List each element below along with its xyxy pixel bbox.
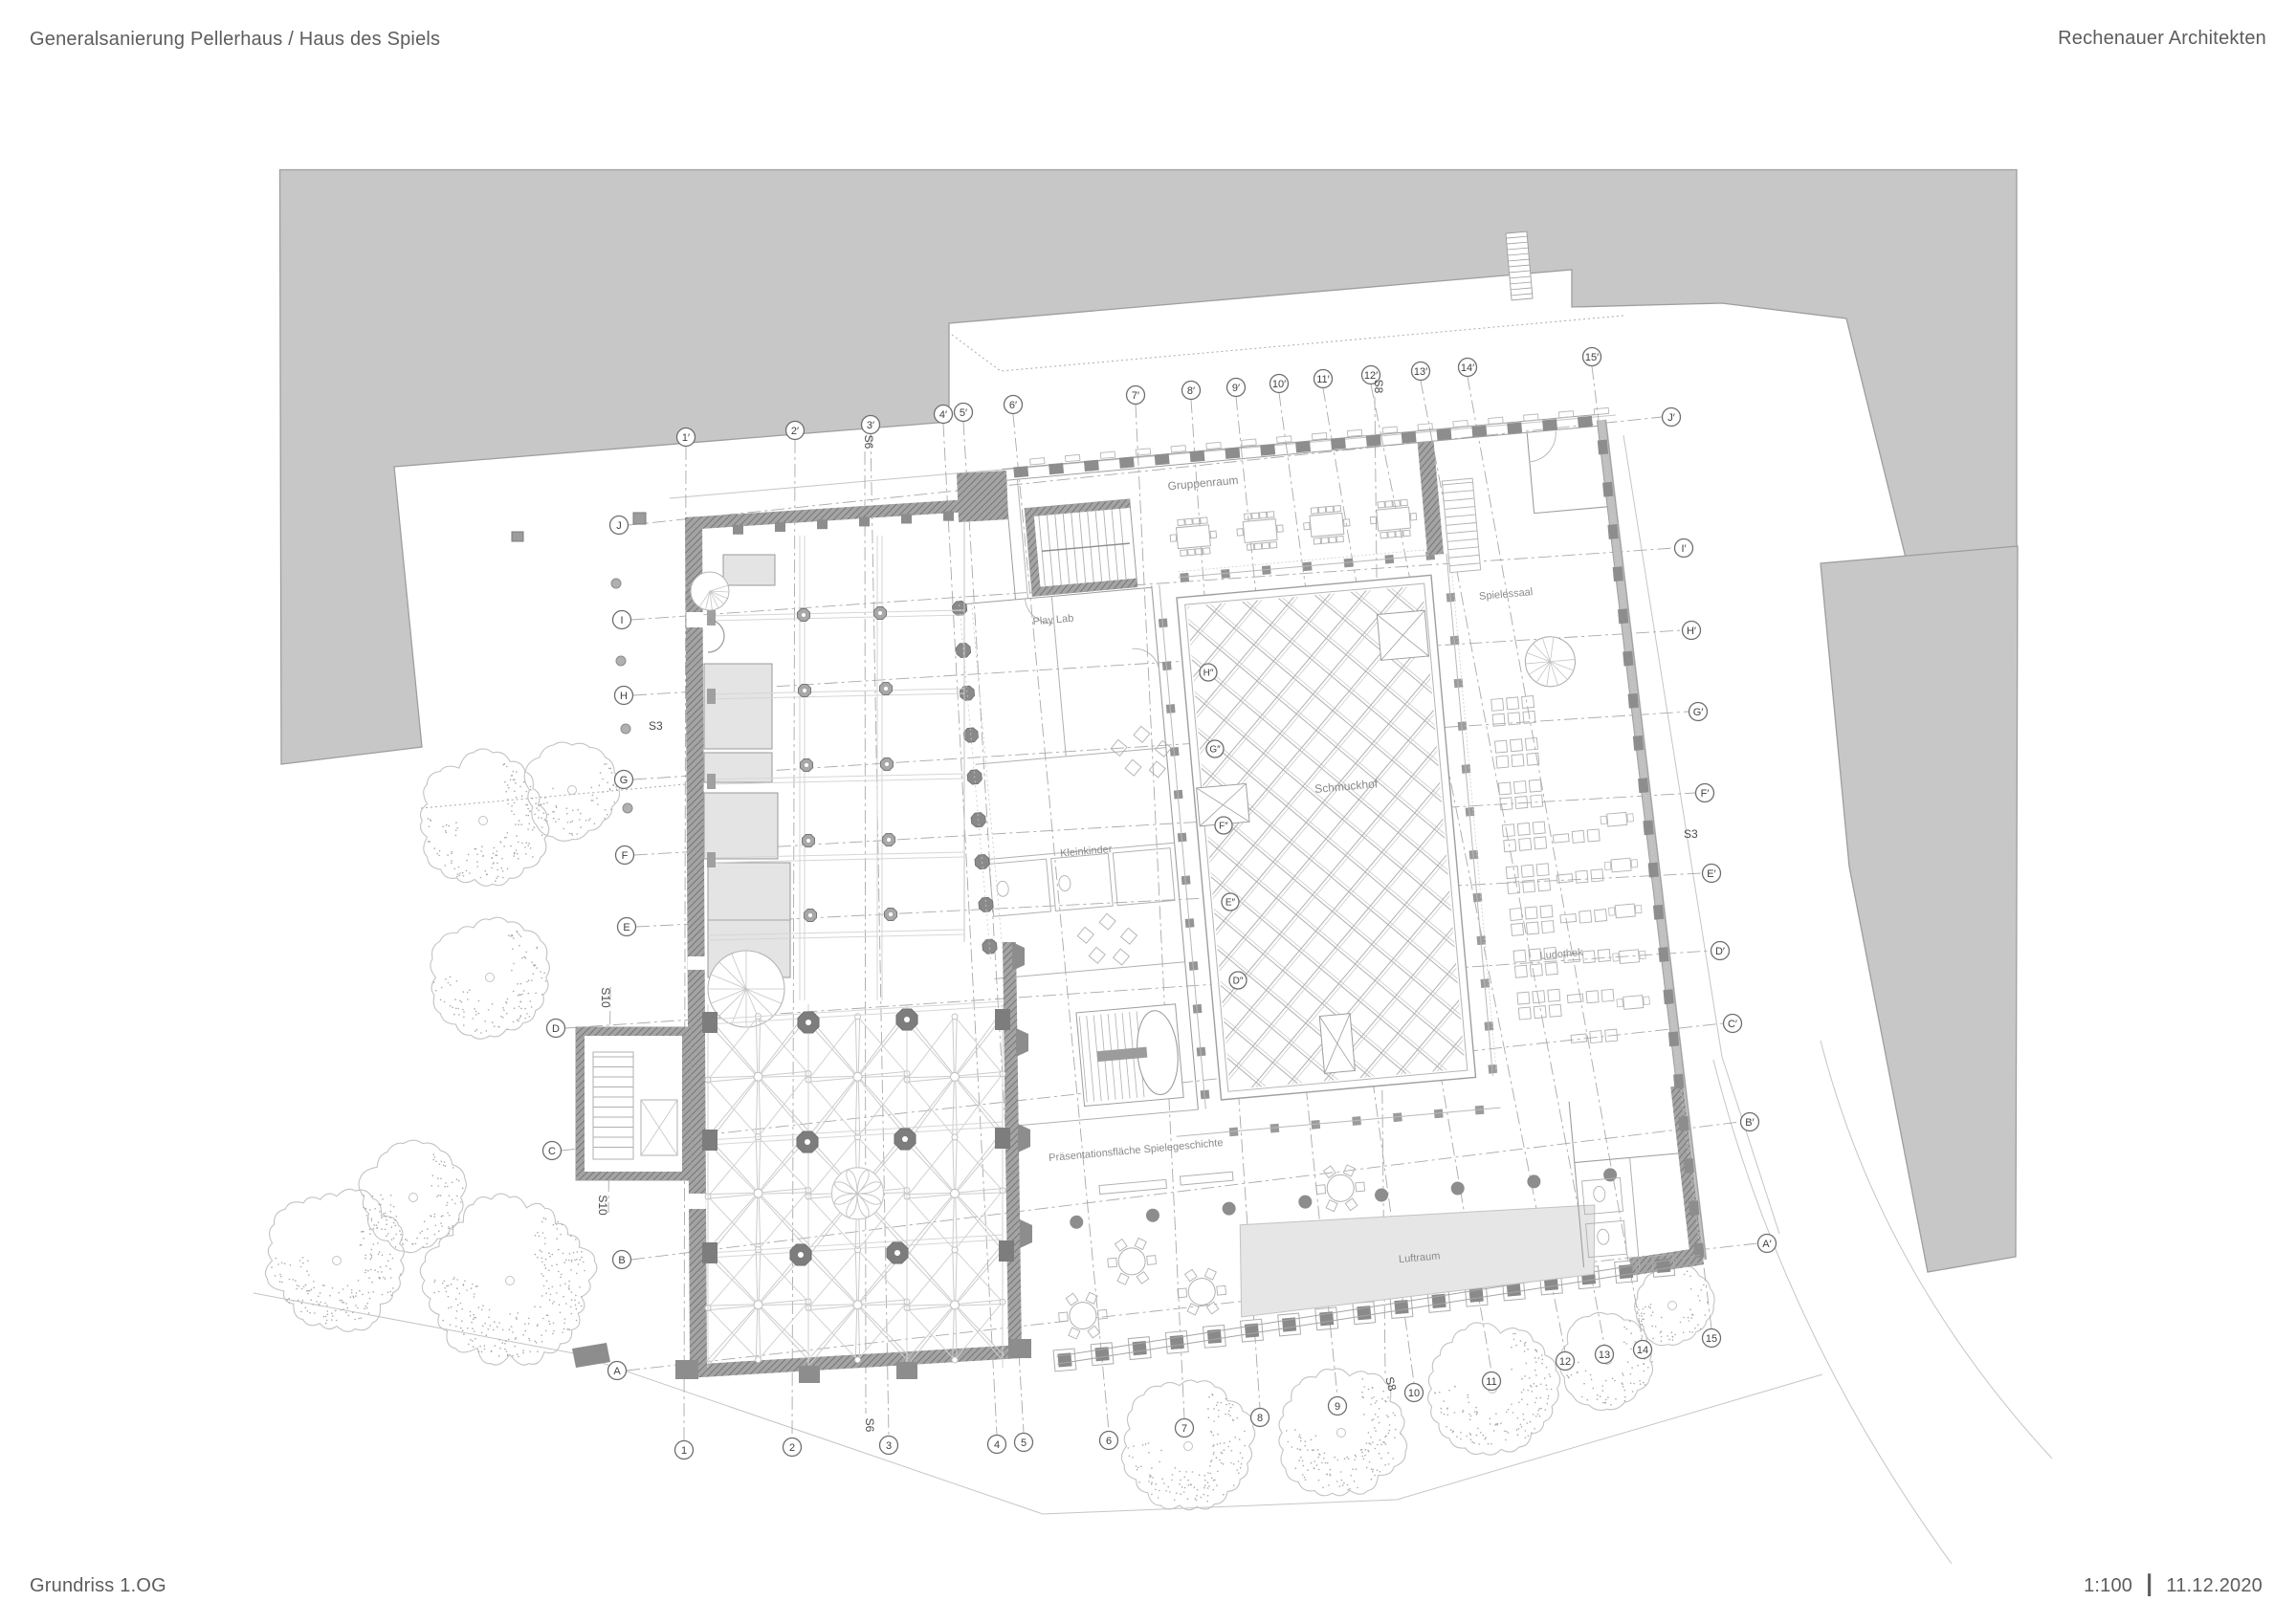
svg-text:Grundriss 1.OG: Grundriss 1.OG	[30, 1575, 166, 1596]
svg-text:S10: S10	[599, 987, 612, 1008]
svg-text:C: C	[548, 1146, 556, 1157]
svg-text:2′: 2′	[791, 426, 799, 437]
svg-text:S6: S6	[862, 435, 875, 450]
svg-text:J: J	[616, 520, 622, 532]
svg-text:9′: 9′	[1232, 383, 1240, 394]
svg-text:F: F	[622, 850, 629, 862]
svg-text:6′: 6′	[1009, 400, 1017, 411]
svg-text:E′: E′	[1707, 868, 1715, 880]
svg-text:I: I	[620, 615, 623, 626]
svg-text:13: 13	[1599, 1350, 1610, 1361]
svg-text:1: 1	[681, 1445, 687, 1457]
svg-text:A: A	[613, 1366, 621, 1377]
svg-text:2: 2	[789, 1442, 795, 1454]
svg-text:S6: S6	[863, 1418, 876, 1433]
svg-text:D′: D′	[1715, 946, 1725, 957]
svg-text:I′: I′	[1681, 543, 1686, 555]
svg-text:S8: S8	[1372, 380, 1385, 394]
svg-text:3′: 3′	[867, 420, 874, 431]
svg-text:G: G	[620, 775, 629, 786]
svg-text:9: 9	[1335, 1401, 1340, 1413]
svg-text:5: 5	[1021, 1437, 1027, 1449]
svg-text:D: D	[552, 1023, 560, 1035]
svg-text:S10: S10	[596, 1195, 609, 1216]
svg-text:A′: A′	[1762, 1239, 1771, 1250]
svg-text:15′: 15′	[1585, 352, 1599, 363]
svg-text:E″: E″	[1225, 898, 1236, 909]
svg-text:G″: G″	[1209, 745, 1221, 756]
svg-text:15: 15	[1706, 1333, 1717, 1345]
svg-text:7′: 7′	[1132, 390, 1139, 402]
svg-text:14: 14	[1637, 1345, 1648, 1356]
svg-text:10: 10	[1408, 1388, 1420, 1399]
svg-text:S3: S3	[1684, 827, 1698, 841]
svg-text:14′: 14′	[1461, 362, 1474, 374]
svg-text:11: 11	[1486, 1376, 1496, 1388]
svg-text:10′: 10′	[1272, 379, 1286, 390]
svg-text:S3: S3	[649, 719, 663, 733]
svg-text:F″: F″	[1219, 822, 1228, 832]
svg-text:11′: 11′	[1316, 374, 1329, 385]
svg-text:B: B	[618, 1255, 625, 1266]
svg-text:C′: C′	[1728, 1019, 1737, 1030]
svg-text:Generalsanierung Pellerhaus /: Generalsanierung Pellerhaus / Haus des S…	[30, 29, 440, 50]
svg-text:3: 3	[886, 1440, 892, 1452]
svg-text:E: E	[623, 922, 629, 933]
svg-text:8: 8	[1257, 1413, 1263, 1424]
svg-text:1′: 1′	[682, 432, 690, 444]
svg-text:J′: J′	[1667, 412, 1675, 424]
svg-text:B′: B′	[1745, 1117, 1754, 1129]
svg-text:1:100 ┃ 11.12.2020: 1:100 ┃ 11.12.2020	[2084, 1573, 2263, 1596]
svg-text:H″: H″	[1203, 669, 1214, 679]
svg-text:6: 6	[1106, 1436, 1112, 1447]
svg-text:Rechenauer Architekten: Rechenauer Architekten	[2058, 28, 2266, 49]
svg-text:H: H	[620, 691, 628, 702]
svg-text:13′: 13′	[1414, 366, 1427, 378]
svg-text:8′: 8′	[1187, 385, 1195, 397]
svg-text:5′: 5′	[960, 407, 967, 419]
svg-text:H′: H′	[1687, 625, 1696, 637]
svg-text:F′: F′	[1701, 788, 1710, 800]
svg-text:7: 7	[1181, 1423, 1187, 1435]
svg-text:4: 4	[994, 1439, 1000, 1451]
svg-text:D″: D″	[1233, 977, 1244, 987]
svg-text:4′: 4′	[939, 409, 947, 421]
svg-text:G′: G′	[1693, 707, 1704, 718]
svg-text:12: 12	[1559, 1356, 1571, 1368]
